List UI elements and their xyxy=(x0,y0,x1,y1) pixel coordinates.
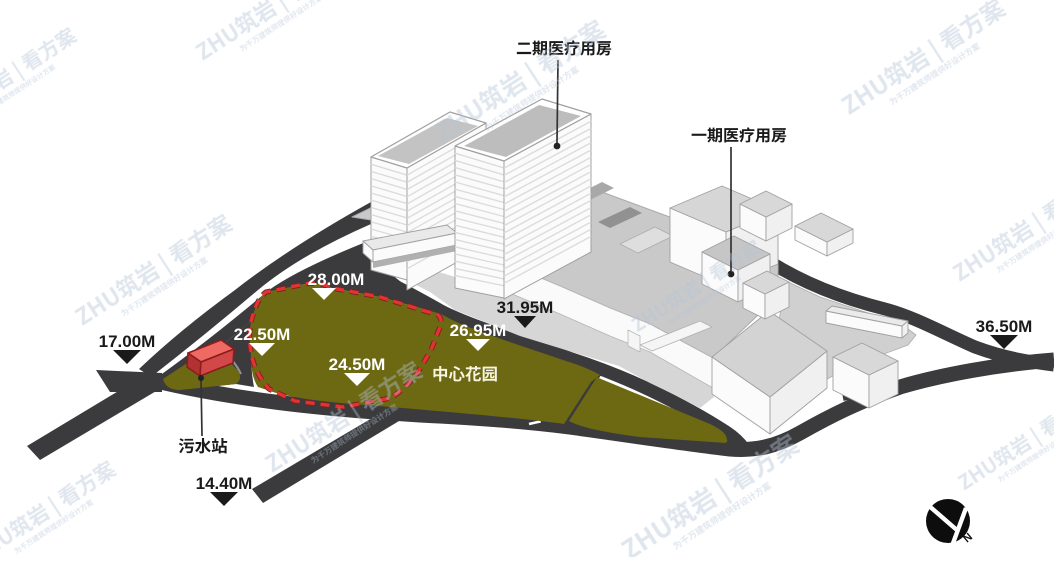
svg-text:22.50M: 22.50M xyxy=(234,325,291,344)
svg-text:24.50M: 24.50M xyxy=(329,355,386,374)
svg-text:17.00M: 17.00M xyxy=(99,332,156,351)
svg-text:31.95M: 31.95M xyxy=(497,298,554,317)
svg-text:28.00M: 28.00M xyxy=(308,270,365,289)
svg-text:14.40M: 14.40M xyxy=(196,474,253,493)
svg-text:26.95M: 26.95M xyxy=(450,321,507,340)
svg-text:36.50M: 36.50M xyxy=(976,317,1033,336)
